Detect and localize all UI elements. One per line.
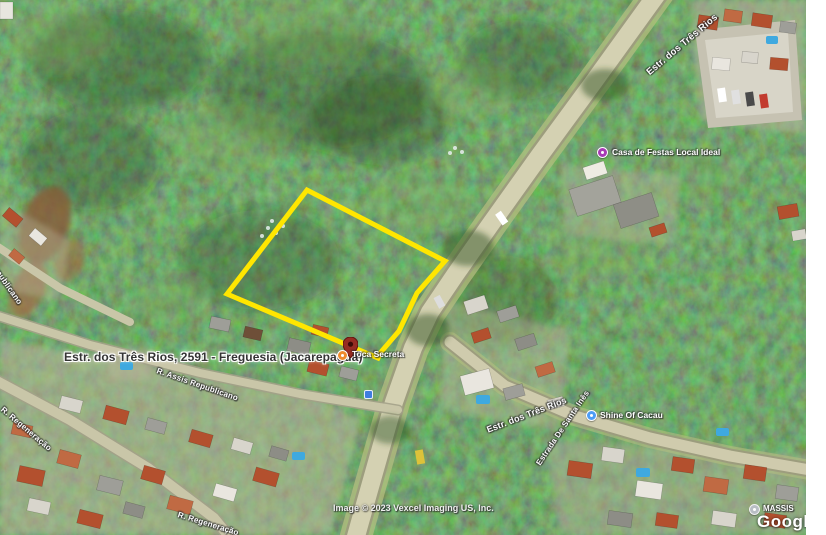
poi-marker-toca-secreta[interactable] <box>337 350 348 361</box>
poi-label-casa-de-festas[interactable]: Casa de Festas Local Ideal <box>612 147 720 157</box>
poi-label-toca-secreta[interactable]: Toca Secreta <box>352 349 404 359</box>
poi-label-shine-of-cacau[interactable]: Shine Of Cacau <box>600 410 663 420</box>
google-watermark[interactable]: Google <box>757 512 806 532</box>
imagery-attribution: Image © 2023 Vexcel Imaging US, Inc. <box>333 503 494 513</box>
address-label: Estr. dos Três Rios, 2591 - Freguesia (J… <box>64 350 363 364</box>
satellite-map[interactable]: Estr. dos Três Rios Estr. dos Três Rios … <box>0 0 806 535</box>
transit-stop-icon[interactable] <box>364 390 373 399</box>
poi-marker-casa-de-festas[interactable] <box>597 147 608 158</box>
driveway <box>695 20 802 128</box>
satellite-imagery <box>0 0 806 535</box>
screenshot-root: Estr. dos Três Rios Estr. dos Três Rios … <box>0 0 826 535</box>
right-margin <box>806 0 826 535</box>
poi-marker-shine-of-cacau[interactable] <box>586 410 597 421</box>
